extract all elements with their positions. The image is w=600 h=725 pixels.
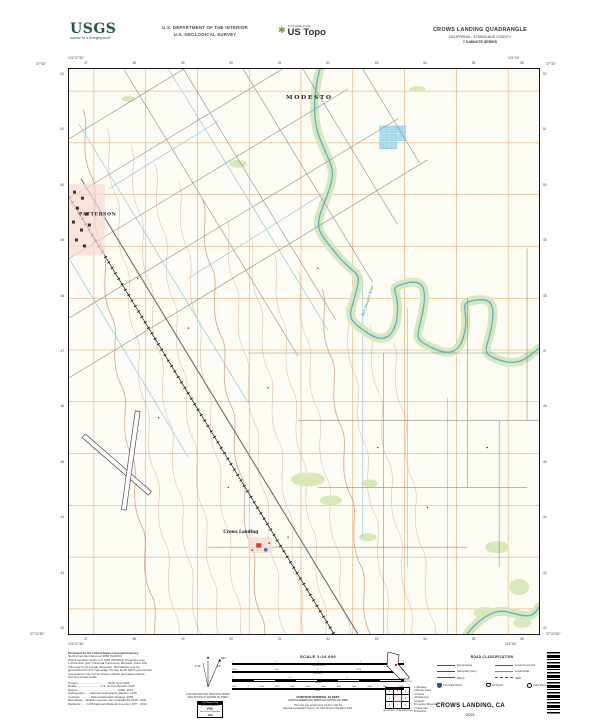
- production-credits: Produced by the United States Geological…: [68, 652, 188, 680]
- legend-row-local-road: Local Road: [495, 669, 547, 673]
- utm-grid-labels-bottom: 47484950515253545556: [84, 637, 524, 641]
- local-connector-line-sample: [495, 665, 513, 666]
- scale-bar-meters: 1000500010002000 METERS: [232, 669, 404, 676]
- topo-map-graphic: MODESTO PATTERSON Crows Landing San Joaq…: [69, 69, 539, 634]
- gn-degrees: 1°12': [195, 664, 201, 668]
- adjoining-center-cell: [394, 695, 402, 702]
- declination-diagram: ★ MN 13° 1°12': [190, 653, 230, 693]
- usgs-topo-sheet: USGS science for a changing world U.S. D…: [0, 0, 600, 725]
- ustopo-sunburst-icon: ✱: [278, 26, 286, 35]
- pond-cells: [380, 126, 406, 149]
- 4wd-line-sample: [495, 677, 513, 678]
- quad-location-marker: [395, 664, 397, 666]
- corner-coordinate-ne-lat: 37°30': [546, 62, 556, 66]
- expressway-line-sample: [437, 665, 455, 666]
- vertical-datum-note: NORTH AMERICAN VERTICAL DATUM OF 1988: [232, 699, 404, 702]
- farm-building-dots: [137, 268, 488, 538]
- ustopo-label: US Topo: [288, 28, 326, 38]
- corner-coordinate-se-lon: 121°00': [505, 642, 516, 646]
- dept-line2: U.S. GEOLOGICAL SURVEY: [140, 32, 270, 39]
- quadrangle-location-caption: QUADRANGLE LOCATION: [374, 681, 422, 683]
- adjoining-quads-list: 1 Westley2 Brush Lake3 Ceres4 Patterson5…: [414, 686, 439, 713]
- true-north-star: ★: [206, 655, 210, 660]
- legend-row-4wd: 4WD: [495, 676, 547, 680]
- usng-box: U.S. National Grid 100,000-m Square ID F…: [197, 701, 223, 718]
- utm-grid-labels-left: 5251504948474645444342: [52, 72, 64, 630]
- san-joaquin-river-vegetation: [315, 69, 539, 362]
- airfield-runways: [82, 411, 151, 510]
- corner-coordinate-nw-lat: 37°30': [36, 62, 46, 66]
- usgs-logo-text: USGS: [70, 21, 140, 37]
- secondary-hwy-line-sample: [437, 671, 455, 672]
- quad-title: CROWS LANDING QUADRANGLE: [400, 27, 560, 33]
- state-route-legend: State Route: [527, 683, 547, 688]
- ustopo-logo: ✱ The National Map US Topo: [278, 24, 326, 38]
- scale-bar-kilometers: 1.5012 KILOMETERS: [232, 661, 404, 668]
- state-route-shield-icon: [527, 683, 532, 688]
- state-locator-map: [386, 652, 410, 680]
- scale-bar-feet: 1000010002000300040005000600070008000900…: [232, 686, 404, 693]
- adjoining-quads-grid: 1 2 3 4 5 6 7 8: [385, 687, 410, 709]
- patterson-label: PATTERSON: [79, 213, 117, 218]
- corner-coordinate-ne-lon: 121°00': [508, 56, 519, 60]
- built-up-area-marker: [256, 543, 261, 547]
- legend-row-local-connector: Local Connector: [495, 663, 547, 667]
- scale-title: SCALE 1:24 000: [232, 654, 404, 659]
- quad-subtitle: CALIFORNIA - STANISLAUS COUNTY: [400, 35, 560, 39]
- interstate-route-legend: Interstate Route: [437, 683, 462, 688]
- utm-grid-labels-top: 47484950515253545556: [84, 61, 524, 65]
- legend-row-expressway: Expressway: [437, 663, 489, 667]
- mn-degrees: 13°: [217, 664, 221, 668]
- corner-coordinate-sw-lat: 37°22'30": [30, 632, 45, 636]
- patterson-buildings: [69, 184, 105, 256]
- legend-row-ramp: Ramp: [437, 676, 489, 680]
- corner-coordinate-sw-lon: 121°07'30": [68, 642, 84, 646]
- legend-row-secondary: Secondary Hwy: [437, 669, 489, 673]
- road-classification-legend: ROAD CLASSIFICATION Expressway Secondary…: [437, 655, 547, 688]
- dept-line1: U.S. DEPARTMENT OF THE INTERIOR: [140, 25, 270, 32]
- crows-landing-label: Crows Landing: [223, 529, 258, 534]
- school-marker: [264, 548, 267, 551]
- barcode: [547, 652, 560, 714]
- mn-label: MN: [221, 656, 226, 660]
- utm-grid-labels-right: 5251504948474645444342: [543, 72, 555, 630]
- map-canvas: MODESTO PATTERSON Crows Landing San Joaq…: [68, 68, 540, 635]
- quadrangle-heading: CROWS LANDING QUADRANGLE CALIFORNIA - ST…: [400, 27, 560, 44]
- usgs-tagline: science for a changing world: [70, 36, 140, 40]
- us-route-legend: US Route: [486, 683, 504, 688]
- modesto-label: MODESTO: [286, 94, 333, 101]
- us-route-shield-icon: [486, 683, 491, 688]
- railroad-track: [69, 197, 334, 634]
- road-classification-title: ROAD CLASSIFICATION: [437, 655, 547, 659]
- ramp-line-sample: [437, 677, 455, 678]
- quad-series: 7.5-MINUTE SERIES: [400, 40, 560, 44]
- department-heading: U.S. DEPARTMENT OF THE INTERIOR U.S. GEO…: [140, 25, 270, 38]
- sheet-title: CROWS LANDING, CA: [408, 703, 533, 709]
- interstate-shield-icon: [437, 683, 442, 688]
- usgs-logo: USGS science for a changing world: [70, 21, 140, 40]
- local-road-line-sample: [495, 671, 513, 672]
- usng-zone: 10S: [198, 713, 222, 717]
- corner-coordinate-nw-lon: 121°07'30": [68, 56, 84, 60]
- corner-coordinate-se-lat: 37°22'30": [546, 632, 561, 636]
- sheet-year: 2021: [408, 712, 533, 717]
- crows-landing-town: [248, 537, 272, 553]
